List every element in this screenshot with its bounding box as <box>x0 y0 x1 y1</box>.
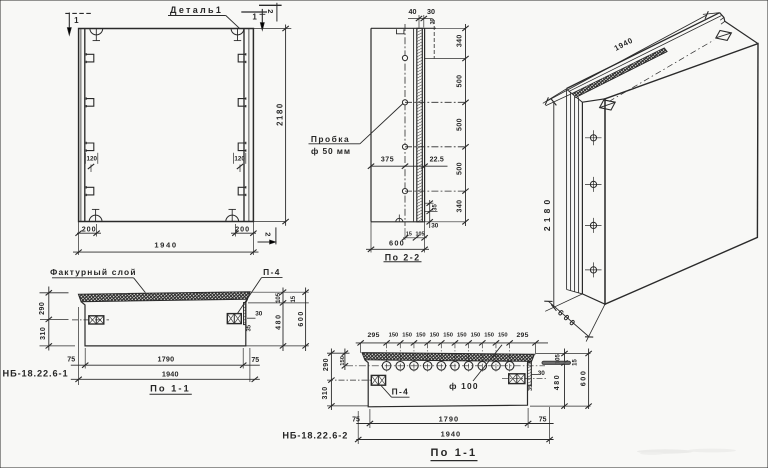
svg-text:22.5: 22.5 <box>430 157 444 164</box>
svg-text:Пробка: Пробка <box>311 134 350 144</box>
svg-text:НБ-18.22.6-2: НБ-18.22.6-2 <box>282 431 348 441</box>
svg-text:1940: 1940 <box>154 240 177 249</box>
svg-text:30: 30 <box>255 311 263 318</box>
svg-text:200: 200 <box>235 224 250 233</box>
svg-text:120: 120 <box>86 155 97 162</box>
svg-text:120: 120 <box>234 155 245 162</box>
svg-text:150: 150 <box>484 333 494 339</box>
svg-text:По 1-1: По 1-1 <box>431 447 478 459</box>
svg-text:500: 500 <box>457 162 464 175</box>
svg-text:75: 75 <box>352 416 360 423</box>
svg-text:1940: 1940 <box>162 370 179 379</box>
svg-text:ф 50 мм: ф 50 мм <box>311 146 351 156</box>
svg-text:500: 500 <box>457 75 464 88</box>
svg-text:30: 30 <box>431 222 439 229</box>
svg-text:600: 600 <box>389 239 405 248</box>
svg-text:150: 150 <box>402 333 412 339</box>
svg-text:150: 150 <box>340 356 346 366</box>
svg-text:Деталь1: Деталь1 <box>170 5 223 15</box>
svg-text:1790: 1790 <box>439 415 459 424</box>
svg-text:600: 600 <box>579 370 588 387</box>
svg-text:480: 480 <box>554 374 561 390</box>
svg-text:75: 75 <box>251 357 259 364</box>
svg-text:75: 75 <box>67 357 75 364</box>
svg-text:310: 310 <box>322 386 329 399</box>
svg-text:295: 295 <box>367 332 379 339</box>
svg-text:75: 75 <box>539 416 547 423</box>
svg-text:150: 150 <box>457 333 467 339</box>
svg-text:15: 15 <box>573 359 579 366</box>
svg-text:ф 100: ф 100 <box>449 381 479 391</box>
svg-text:2180: 2180 <box>275 102 284 126</box>
svg-text:П-4: П-4 <box>263 267 281 277</box>
svg-text:П-4: П-4 <box>392 386 410 396</box>
svg-text:105: 105 <box>276 292 282 303</box>
svg-text:340: 340 <box>457 200 464 213</box>
svg-text:НБ-18.22.6-1: НБ-18.22.6-1 <box>3 369 69 379</box>
svg-text:500: 500 <box>457 118 464 131</box>
svg-text:2180: 2180 <box>542 196 552 231</box>
svg-text:290: 290 <box>323 358 330 371</box>
svg-text:30: 30 <box>538 370 546 377</box>
svg-text:290: 290 <box>39 302 46 315</box>
svg-text:40: 40 <box>409 7 417 16</box>
svg-text:35: 35 <box>528 385 534 391</box>
svg-text:35: 35 <box>433 204 439 211</box>
svg-text:150: 150 <box>389 333 399 339</box>
svg-text:1: 1 <box>74 16 79 25</box>
svg-text:310: 310 <box>40 327 47 340</box>
svg-text:По 2-2: По 2-2 <box>385 252 421 262</box>
svg-text:150: 150 <box>443 333 453 339</box>
svg-text:150: 150 <box>416 333 426 339</box>
svg-text:1940: 1940 <box>441 430 461 439</box>
svg-text:295: 295 <box>516 332 528 339</box>
svg-text:30: 30 <box>427 7 435 16</box>
svg-text:480: 480 <box>275 313 282 329</box>
svg-text:Фактурный слой: Фактурный слой <box>50 267 137 277</box>
svg-text:200: 200 <box>82 224 97 233</box>
svg-text:36: 36 <box>430 19 436 25</box>
svg-text:1790: 1790 <box>158 354 175 363</box>
svg-text:375: 375 <box>381 157 394 164</box>
svg-text:150: 150 <box>471 333 481 339</box>
svg-text:2: 2 <box>266 9 275 13</box>
svg-text:1: 1 <box>252 12 257 21</box>
svg-text:150: 150 <box>498 333 508 339</box>
svg-text:600: 600 <box>298 310 305 326</box>
svg-text:150: 150 <box>430 333 440 339</box>
svg-text:35: 35 <box>246 324 252 331</box>
svg-text:340: 340 <box>457 34 464 47</box>
svg-text:2: 2 <box>264 232 273 236</box>
svg-text:По 1-1: По 1-1 <box>150 383 191 394</box>
svg-text:15: 15 <box>291 295 297 302</box>
